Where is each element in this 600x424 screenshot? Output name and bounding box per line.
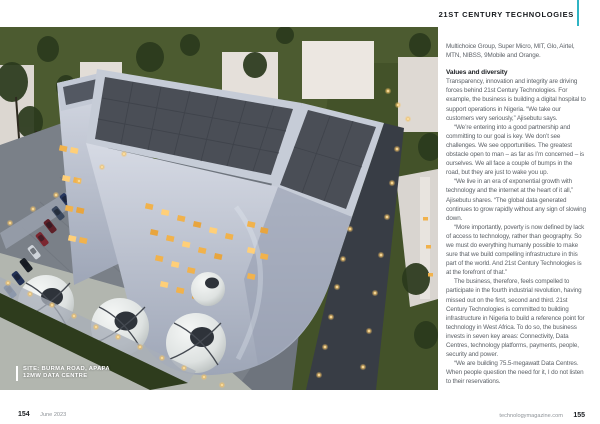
article-paragraph: “We’re entering into a good partnership … <box>446 123 587 178</box>
header-accent-rule <box>577 0 579 26</box>
article-heading: Values and diversity <box>446 68 587 77</box>
page-number-right: 155 <box>573 412 585 419</box>
article-paragraph: “More importantly, poverty is now define… <box>446 223 587 278</box>
page-number-left: 154 <box>18 411 30 418</box>
footer-left: 154 June 2023 <box>18 403 66 421</box>
photo-caption: SITE: BURMA ROAD, APAPA 12MW DATA CENTRE <box>16 366 110 381</box>
issue-date: June 2023 <box>40 412 66 418</box>
article-paragraph: The business, therefore, feels compelled… <box>446 277 587 359</box>
site-url: technologymagazine.com <box>499 413 562 419</box>
site-photo-illustration <box>0 27 438 390</box>
footer-right: technologymagazine.com 155 <box>499 404 585 422</box>
page-title: 21ST CENTURY TECHNOLOGIES <box>439 10 574 19</box>
article-paragraph: “We live in an era of exponential growth… <box>446 177 587 222</box>
article-intro: Multichoice Group, Super Micro, MIT, Glo… <box>446 42 587 60</box>
article-paragraph: Transparency, innovation and integrity a… <box>446 77 587 122</box>
photo-caption-line2: 12MW DATA CENTRE <box>23 373 110 381</box>
article-column: Multichoice Group, Super Micro, MIT, Glo… <box>446 42 587 386</box>
article-paragraph: “We are building 75.5-megawatt Data Cent… <box>446 359 587 386</box>
magazine-spread: 21ST CENTURY TECHNOLOGIES <box>0 0 600 424</box>
site-aerial-photo: SITE: BURMA ROAD, APAPA 12MW DATA CENTRE <box>0 27 438 390</box>
